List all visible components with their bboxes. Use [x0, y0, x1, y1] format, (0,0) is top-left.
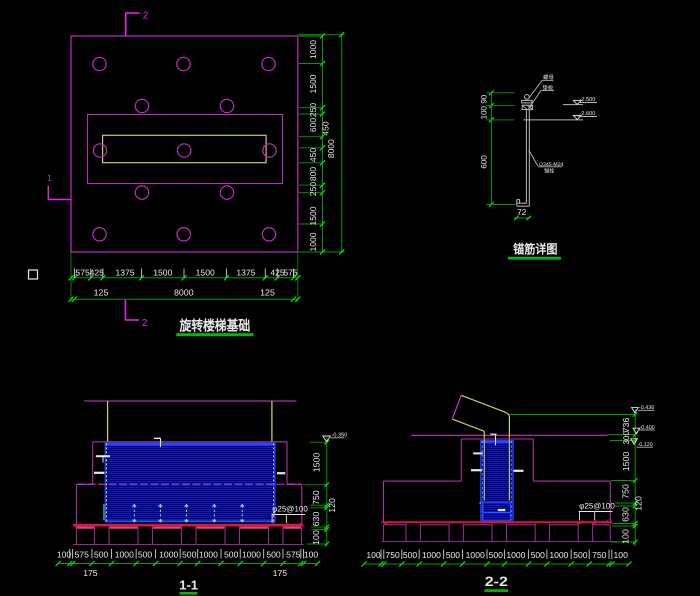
svg-text:500: 500	[573, 550, 588, 560]
svg-text:1375: 1375	[115, 268, 134, 278]
svg-text:450: 450	[308, 148, 318, 162]
svg-text:630: 630	[621, 507, 631, 522]
svg-text:100: 100	[57, 550, 72, 560]
svg-text:φ25@100: φ25@100	[579, 502, 615, 511]
svg-text:500: 500	[224, 550, 239, 560]
svg-text:630: 630	[311, 512, 321, 527]
svg-text:1000: 1000	[308, 232, 318, 251]
svg-text:300: 300	[622, 431, 631, 445]
svg-text:螺母: 螺母	[543, 74, 554, 81]
svg-text:1000: 1000	[199, 550, 218, 560]
svg-text:90: 90	[479, 94, 488, 103]
svg-text:425: 425	[90, 268, 105, 278]
svg-text:500: 500	[182, 550, 197, 560]
svg-text:575: 575	[283, 268, 298, 278]
svg-text:100: 100	[621, 529, 631, 544]
svg-text:500: 500	[403, 550, 418, 560]
svg-text:1000: 1000	[159, 550, 178, 560]
svg-text:500: 500	[266, 550, 281, 560]
svg-text:575: 575	[75, 550, 90, 560]
svg-text:100: 100	[614, 550, 629, 560]
svg-text:1500: 1500	[308, 74, 318, 93]
svg-text:1000: 1000	[422, 550, 441, 560]
svg-text:250: 250	[308, 182, 318, 196]
svg-text:φ25@100: φ25@100	[272, 504, 308, 513]
svg-text:2-2: 2-2	[485, 574, 508, 589]
svg-text:575: 575	[286, 550, 301, 560]
svg-text:125: 125	[260, 288, 275, 298]
svg-text:250: 250	[308, 103, 318, 117]
svg-text:1000: 1000	[466, 550, 485, 560]
svg-text:500: 500	[138, 550, 153, 560]
svg-text:1500: 1500	[312, 453, 322, 473]
svg-text:500: 500	[94, 550, 109, 560]
svg-text:8000: 8000	[174, 288, 194, 298]
svg-text:750: 750	[311, 490, 321, 505]
svg-text:72: 72	[517, 207, 527, 217]
svg-text:600: 600	[479, 155, 488, 169]
svg-text:1000: 1000	[549, 550, 568, 560]
svg-text:锚栓: 锚栓	[544, 168, 555, 175]
svg-text:1000: 1000	[506, 550, 525, 560]
svg-text:垫板: 垫板	[543, 84, 554, 91]
svg-text:120: 120	[634, 496, 644, 511]
svg-text:1500: 1500	[308, 206, 318, 225]
svg-text:500: 500	[446, 550, 461, 560]
svg-text:1000: 1000	[242, 550, 261, 560]
svg-text:2: 2	[143, 11, 149, 22]
svg-text:750: 750	[385, 550, 400, 560]
svg-text:1-1: 1-1	[179, 578, 198, 593]
svg-text:750: 750	[621, 484, 631, 499]
svg-text:1500: 1500	[196, 268, 215, 278]
svg-text:600: 600	[308, 118, 318, 132]
svg-text:100: 100	[311, 530, 321, 545]
svg-text:8000: 8000	[326, 139, 336, 158]
svg-text:1000: 1000	[115, 550, 134, 560]
svg-text:1: 1	[47, 173, 52, 183]
svg-text:175: 175	[273, 568, 288, 578]
svg-text:1375: 1375	[236, 268, 255, 278]
svg-text:750: 750	[592, 550, 607, 560]
svg-text:450: 450	[321, 121, 331, 135]
svg-text:旋转楼梯基础: 旋转楼梯基础	[179, 318, 250, 335]
svg-text:100: 100	[479, 105, 488, 119]
svg-text:500: 500	[531, 550, 546, 560]
svg-text:1500: 1500	[153, 268, 172, 278]
svg-text:800: 800	[308, 167, 318, 181]
svg-text:500: 500	[489, 550, 504, 560]
svg-text:100: 100	[304, 550, 319, 560]
svg-text:125: 125	[94, 288, 109, 298]
svg-text:2: 2	[142, 318, 148, 329]
svg-text:锚筋详图: 锚筋详图	[513, 242, 557, 256]
svg-text:575: 575	[75, 268, 90, 278]
svg-text:120: 120	[327, 498, 337, 513]
svg-text:Q345-M24: Q345-M24	[539, 162, 564, 168]
svg-text:100: 100	[366, 550, 381, 560]
svg-text:1500: 1500	[621, 452, 631, 472]
svg-text:1000: 1000	[308, 40, 318, 59]
svg-text:175: 175	[83, 568, 98, 578]
svg-text:736: 736	[621, 418, 631, 433]
